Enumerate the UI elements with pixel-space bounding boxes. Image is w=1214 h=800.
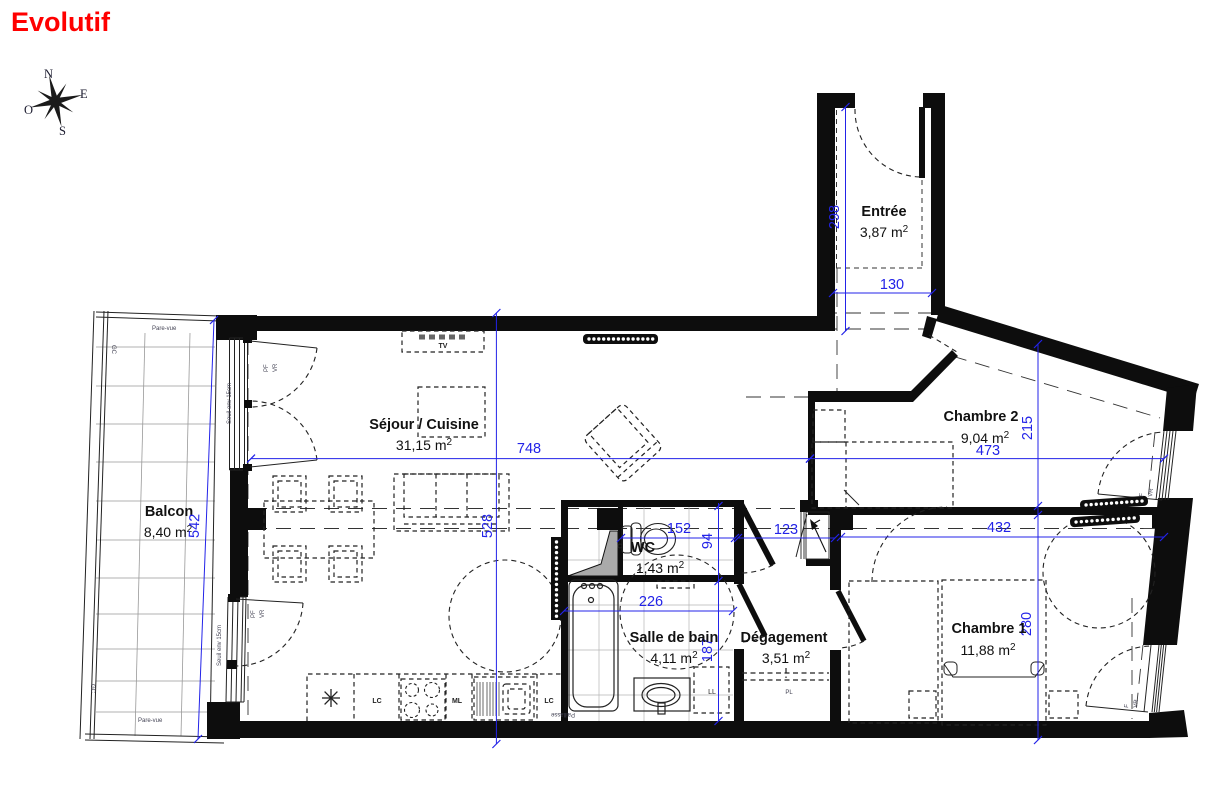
svg-text:8,40 m2: 8,40 m2: [144, 524, 193, 540]
svg-text:O: O: [24, 103, 33, 117]
svg-text:Entrée: Entrée: [861, 204, 906, 220]
svg-text:Pare-vue: Pare-vue: [152, 326, 177, 332]
svg-text:S: S: [59, 124, 66, 138]
svg-text:PL: PL: [785, 690, 793, 696]
svg-text:GC: GC: [89, 684, 95, 694]
svg-text:Salle de bain: Salle de bain: [630, 630, 719, 646]
svg-text:VR: VR: [260, 609, 266, 618]
svg-text:3,87 m2: 3,87 m2: [860, 224, 909, 240]
svg-text:542: 542: [187, 513, 204, 538]
svg-text:GC: GC: [110, 345, 116, 355]
svg-text:Dégagement: Dégagement: [740, 630, 827, 646]
svg-text:130: 130: [880, 277, 904, 293]
svg-text:N: N: [44, 67, 53, 81]
svg-text:432: 432: [987, 520, 1011, 536]
svg-text:LL: LL: [708, 689, 716, 696]
svg-text:152: 152: [667, 521, 691, 537]
svg-text:ML: ML: [452, 698, 463, 705]
svg-text:528: 528: [480, 514, 496, 538]
svg-text:PF: PF: [264, 364, 270, 372]
svg-text:4,11 m2: 4,11 m2: [650, 650, 698, 666]
svg-text:9,04 m2: 9,04 m2: [961, 430, 1010, 446]
svg-text:LC: LC: [372, 698, 381, 705]
svg-text:94: 94: [700, 533, 716, 549]
svg-text:VR: VR: [1133, 699, 1140, 709]
svg-text:11,88 m2: 11,88 m2: [960, 642, 1016, 658]
svg-text:215: 215: [1020, 416, 1036, 440]
svg-text:123: 123: [774, 522, 798, 538]
svg-text:PF: PF: [251, 610, 257, 618]
svg-text:1,43 m2: 1,43 m2: [636, 560, 685, 576]
svg-text:Seuil env 15cm: Seuil env 15cm: [227, 383, 233, 424]
svg-text:LC: LC: [544, 698, 553, 705]
svg-text:E: E: [80, 87, 88, 101]
svg-text:226: 226: [639, 594, 663, 610]
svg-text:Paillasse: Paillasse: [550, 711, 575, 717]
svg-text:Balcon: Balcon: [145, 504, 193, 520]
svg-text:Pare-vue: Pare-vue: [138, 718, 163, 724]
svg-text:Chambre 2: Chambre 2: [944, 409, 1019, 425]
svg-text:3,51 m2: 3,51 m2: [762, 650, 811, 666]
svg-text:VR: VR: [1148, 488, 1155, 498]
svg-text:VR: VR: [273, 363, 279, 372]
svg-text:Seuil env 15cm: Seuil env 15cm: [217, 625, 223, 666]
svg-text:WC: WC: [631, 540, 656, 556]
svg-text:748: 748: [517, 441, 541, 457]
svg-text:Chambre 1: Chambre 1: [952, 621, 1027, 637]
svg-text:TV: TV: [439, 343, 448, 350]
svg-text:298: 298: [827, 205, 843, 229]
svg-text:31,15 m2: 31,15 m2: [396, 437, 453, 453]
svg-text:Evolutif: Evolutif: [11, 7, 111, 37]
svg-text:Séjour / Cuisine: Séjour / Cuisine: [369, 417, 479, 433]
